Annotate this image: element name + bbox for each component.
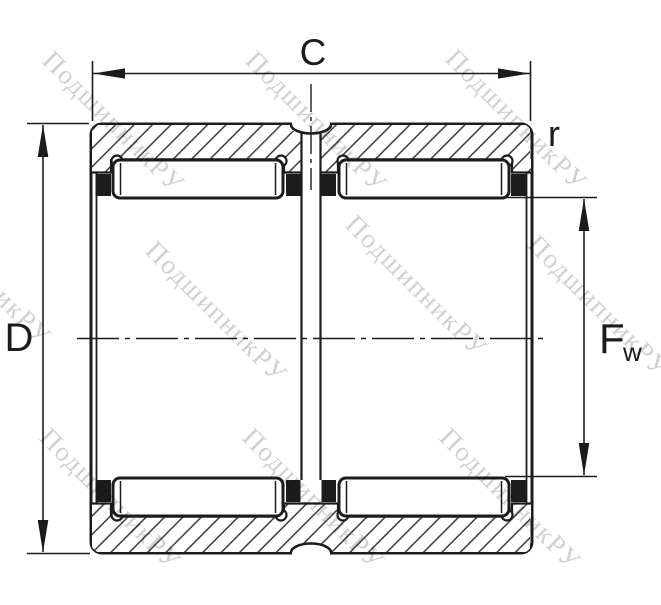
drawing-svg: C D F w r ПодшипникРУ ПодшипникРУ Подшип… [0,0,661,605]
ring-top-lip-left [92,159,111,173]
c-arrow-right-icon [498,68,530,78]
fw-arrow-down-icon [579,443,590,476]
watermark-text: ПодшипникРУ [522,229,661,383]
fw-arrow-up-icon [579,199,590,232]
c-arrow-left-icon [93,68,125,78]
oil-groove-bottom [291,544,331,553]
bearing-cross-section-drawing: C D F w r ПодшипникРУ ПодшипникРУ Подшип… [0,0,661,605]
d-arrow-up-icon [38,125,49,158]
d-arrow-down-icon [38,520,49,553]
label-width-C: C [300,32,327,73]
ring-top-lip-right [511,159,531,173]
